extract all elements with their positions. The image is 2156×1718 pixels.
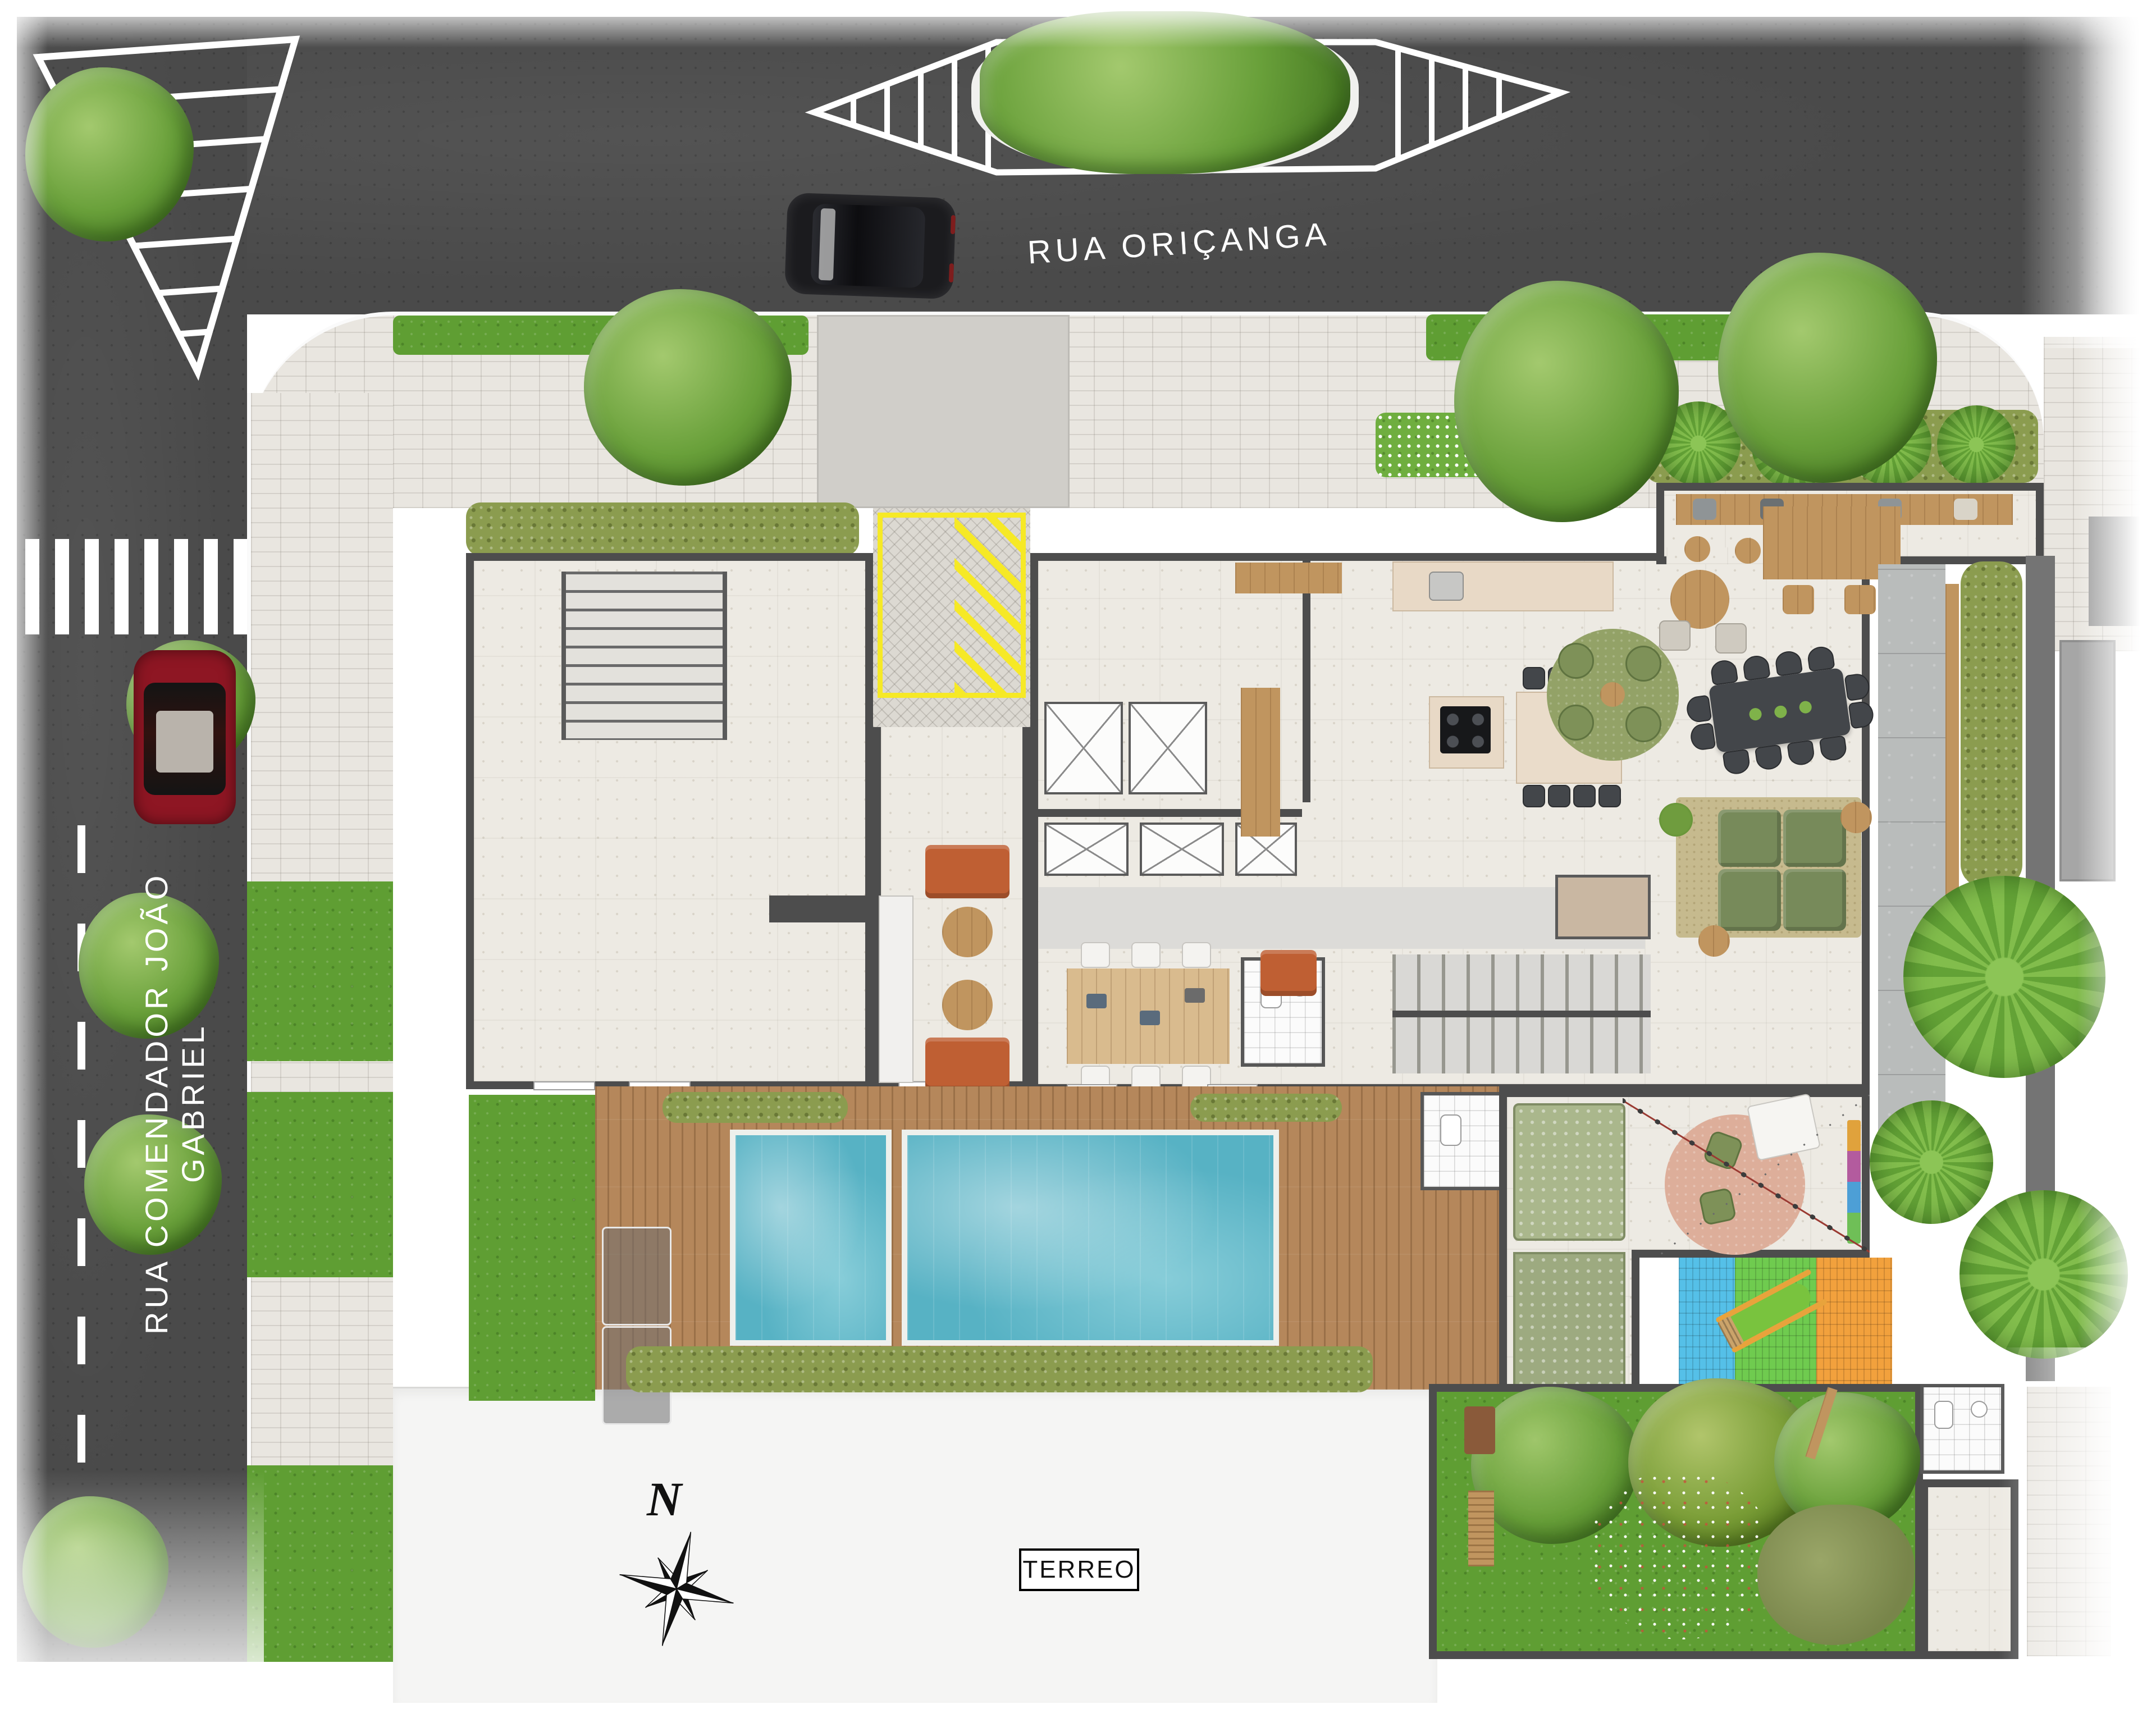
edge-fade xyxy=(0,1471,264,1718)
chair xyxy=(1806,645,1835,672)
modular-sofa xyxy=(1783,810,1846,867)
elevator-shaft xyxy=(1044,702,1123,794)
chair xyxy=(1081,942,1110,968)
compass-rose-icon xyxy=(612,1524,741,1653)
pool-large xyxy=(902,1130,1279,1346)
chair xyxy=(1573,785,1596,807)
toilet-icon xyxy=(1934,1401,1953,1429)
pouf xyxy=(1625,706,1661,742)
core-stairs xyxy=(1392,1017,1651,1073)
kitchen-counter xyxy=(1392,561,1614,611)
laptop-icon xyxy=(1140,1011,1160,1025)
bathroom xyxy=(1420,1092,1510,1190)
chair xyxy=(1598,785,1621,807)
palm-tree xyxy=(1937,405,2016,484)
bar-stool xyxy=(1684,536,1710,562)
side-passage xyxy=(1878,564,1945,1159)
grass-verge xyxy=(247,1092,393,1277)
pool-umbrella xyxy=(602,1227,672,1326)
string-lights xyxy=(1623,1095,1870,1258)
vent-shaft xyxy=(1044,823,1129,876)
modular-sofa xyxy=(1783,869,1846,931)
core-corridor xyxy=(1039,887,1645,949)
compass-rose: N xyxy=(609,1471,744,1656)
deck-planter xyxy=(663,1092,848,1123)
edge-fade xyxy=(0,0,48,1716)
level-label-box: TERREO xyxy=(1019,1548,1139,1591)
side-table-round xyxy=(1840,802,1872,833)
service-elevator xyxy=(1555,875,1651,939)
stair-divider xyxy=(1392,1011,1651,1017)
side-hedge xyxy=(1961,561,2022,887)
grass-verge xyxy=(247,881,393,1061)
vent-shaft xyxy=(1140,823,1224,876)
tower-footprint-apron xyxy=(393,1387,1437,1703)
side-table-round xyxy=(1698,925,1730,957)
lounge-sofa xyxy=(925,845,1010,898)
coffee-table-round xyxy=(942,980,993,1030)
pouf xyxy=(1558,643,1594,679)
cooktop-icon xyxy=(1440,706,1491,753)
side-boardwalk xyxy=(1945,584,1959,932)
edge-fade xyxy=(1999,1347,2156,1662)
pool-small xyxy=(730,1130,892,1346)
garden-planter xyxy=(1464,1406,1495,1454)
bar-cushion xyxy=(1954,499,1977,520)
chair xyxy=(1783,585,1814,614)
chair xyxy=(1710,659,1738,686)
rocking-chair xyxy=(1659,620,1691,651)
coffee-table-round xyxy=(942,907,993,957)
laptop-icon xyxy=(1185,988,1205,1003)
side-table-round xyxy=(1600,682,1625,707)
chair xyxy=(1523,785,1545,807)
bar-cushion xyxy=(1693,499,1716,520)
palm-tree xyxy=(1870,1100,1993,1224)
dropoff-hatching xyxy=(954,518,1021,693)
level-label: TERREO xyxy=(1022,1556,1135,1584)
deck-planter xyxy=(1190,1094,1342,1122)
street-name-left: RUA COMENDADOR JOÃO GABRIEL xyxy=(138,797,192,1409)
pouf xyxy=(1558,705,1594,741)
sink-icon xyxy=(1971,1401,1988,1418)
kids-daybed xyxy=(1513,1103,1625,1241)
pantry-counter xyxy=(1241,688,1280,837)
chair xyxy=(1844,585,1876,614)
garden-bench xyxy=(1468,1491,1494,1566)
driveway-apron xyxy=(817,315,1070,508)
chair xyxy=(1182,942,1211,968)
chair xyxy=(1848,700,1875,729)
dining-table-12 xyxy=(1689,643,1871,778)
edge-fade xyxy=(0,0,2156,48)
kitchen-upper-cabinet xyxy=(1235,563,1342,593)
bar-stool xyxy=(1735,538,1761,564)
side-lawn xyxy=(469,1095,595,1401)
chair xyxy=(1742,654,1770,681)
window xyxy=(533,1081,595,1090)
building-front-hedge xyxy=(466,502,859,556)
bathroom xyxy=(1920,1384,2004,1474)
flowering-bush xyxy=(1589,1471,1774,1639)
laptop-icon xyxy=(1086,994,1107,1008)
pool-hedge xyxy=(626,1346,1373,1392)
toilet-icon xyxy=(1440,1114,1461,1146)
grass-verge xyxy=(247,1465,393,1662)
potted-plant-icon xyxy=(1659,803,1693,837)
rocking-chair xyxy=(1715,623,1747,654)
pouf xyxy=(1625,646,1661,682)
crosswalk xyxy=(25,539,250,634)
modular-sofa xyxy=(1718,810,1781,867)
core-stairs xyxy=(1392,954,1651,1011)
bench-sofa xyxy=(1260,950,1317,996)
chair xyxy=(1774,650,1803,677)
lounge-sofa xyxy=(925,1038,1010,1091)
lobby-stairs xyxy=(561,572,727,740)
interior-wall xyxy=(1303,561,1310,802)
north-label: N xyxy=(631,1471,698,1527)
chair xyxy=(1131,942,1161,968)
reception-counter xyxy=(879,895,913,1083)
elevator-shaft xyxy=(1129,702,1207,794)
chair xyxy=(1548,785,1570,807)
palm-tree xyxy=(1903,876,2105,1078)
kitchen-sink-icon xyxy=(1429,572,1464,601)
chair xyxy=(1523,667,1545,689)
car-black xyxy=(784,193,956,299)
site-plan-canvas: { "streets": { "top": { "name": "RUA ORI… xyxy=(0,0,2156,1716)
modular-sofa xyxy=(1718,869,1781,931)
